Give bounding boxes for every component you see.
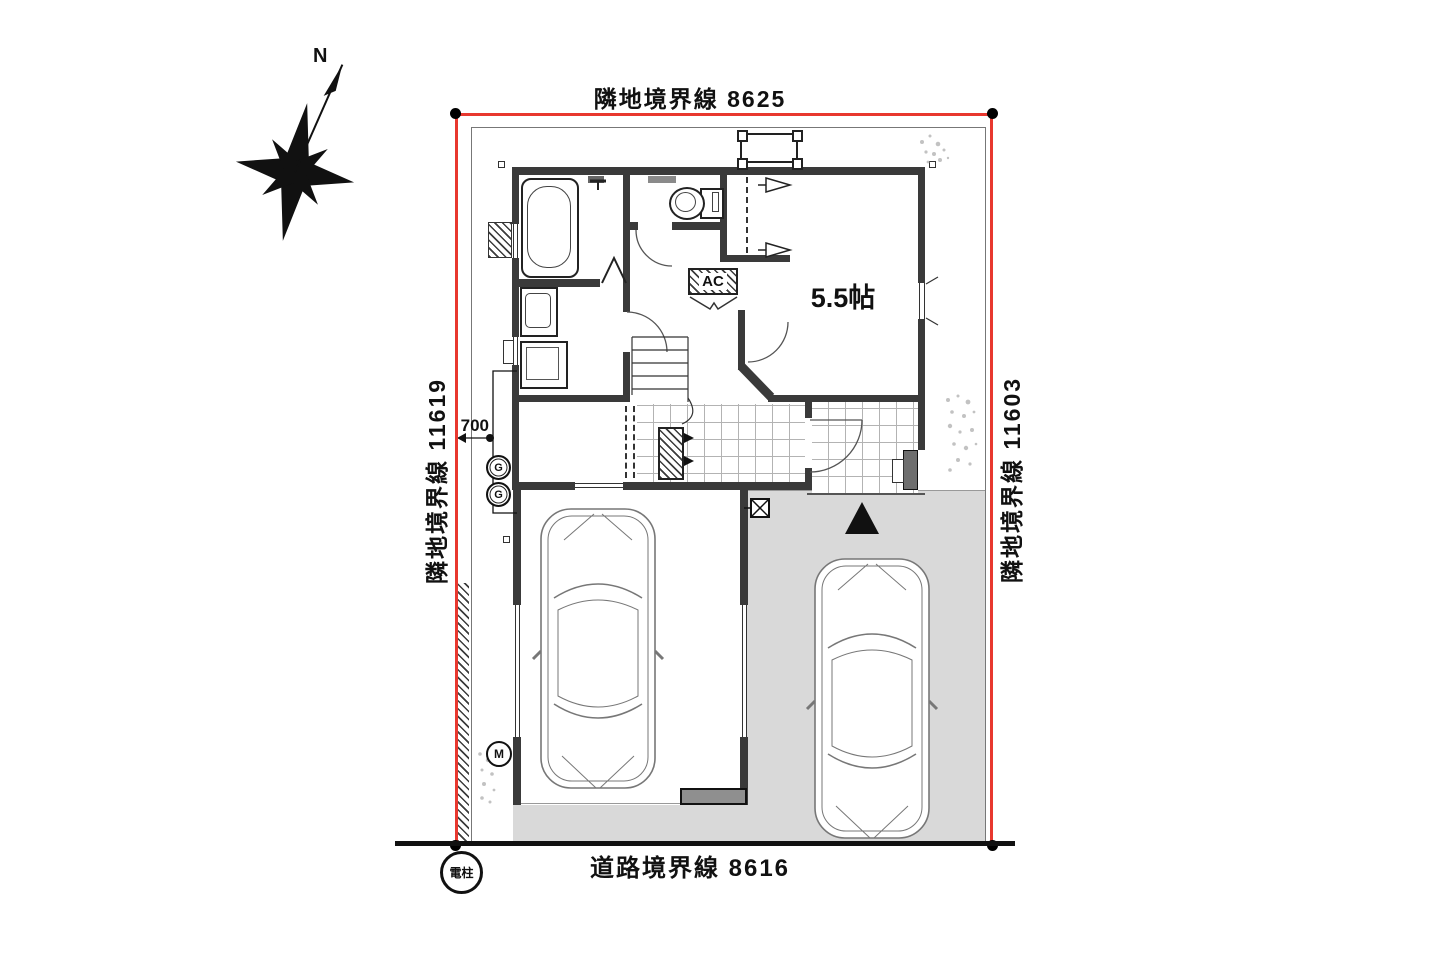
gas-meter-1: G	[486, 455, 511, 480]
boundary-label-bottom: 道路境界線 8616	[455, 848, 925, 883]
site-plan-canvas: AC	[0, 0, 1440, 960]
boundary-corner-point	[987, 108, 998, 119]
site-boundary-line	[455, 113, 993, 845]
compass-icon: N	[233, 40, 363, 250]
dimension-700-label: 700	[455, 416, 489, 436]
boundary-label-top: 隣地境界線 8625	[455, 80, 925, 114]
utility-pole: 電柱	[440, 851, 483, 894]
electric-meter: M	[486, 741, 512, 767]
gas-meter-2: G	[486, 482, 511, 507]
road-line	[395, 841, 1015, 846]
north-label: N	[313, 45, 327, 67]
boundary-label-right: 隣地境界線 11603	[993, 350, 1027, 610]
boundary-label-left: 隣地境界線 11619	[418, 341, 452, 621]
room-label-5-5: 5.5帖	[770, 276, 916, 315]
